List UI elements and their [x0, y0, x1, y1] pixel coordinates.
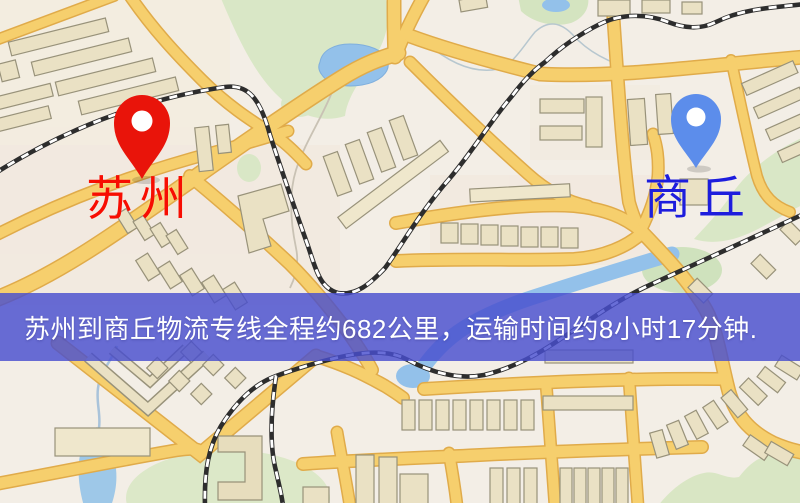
destination-pin-icon	[671, 94, 721, 168]
destination-city-label: 商丘	[644, 176, 752, 223]
route-info-banner: 苏州到商丘物流专线全程约682公里，运输时间约8小时17分钟.	[0, 293, 800, 361]
logistics-route-map: 苏州 商丘 苏州到商丘物流专线全程约682公里，运输时间约8小时17分钟.	[0, 0, 800, 503]
destination-pin-shadow	[687, 166, 711, 173]
map-canvas	[0, 0, 800, 503]
origin-city-label: 苏州	[86, 177, 194, 224]
route-info-text: 苏州到商丘物流专线全程约682公里，运输时间约8小时17分钟.	[24, 309, 757, 346]
